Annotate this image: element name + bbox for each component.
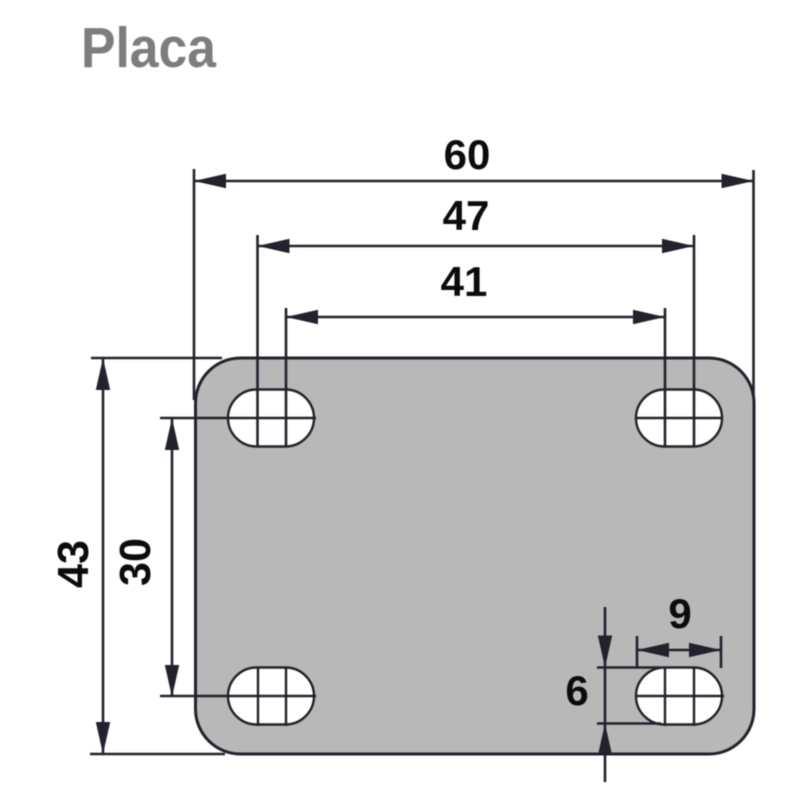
svg-text:43: 43 <box>49 540 98 588</box>
svg-text:47: 47 <box>443 192 490 239</box>
svg-text:41: 41 <box>441 258 488 305</box>
svg-text:6: 6 <box>565 667 588 714</box>
svg-text:60: 60 <box>444 131 491 178</box>
svg-text:Placa: Placa <box>81 16 217 80</box>
svg-text:30: 30 <box>111 538 160 586</box>
svg-text:9: 9 <box>668 590 691 637</box>
